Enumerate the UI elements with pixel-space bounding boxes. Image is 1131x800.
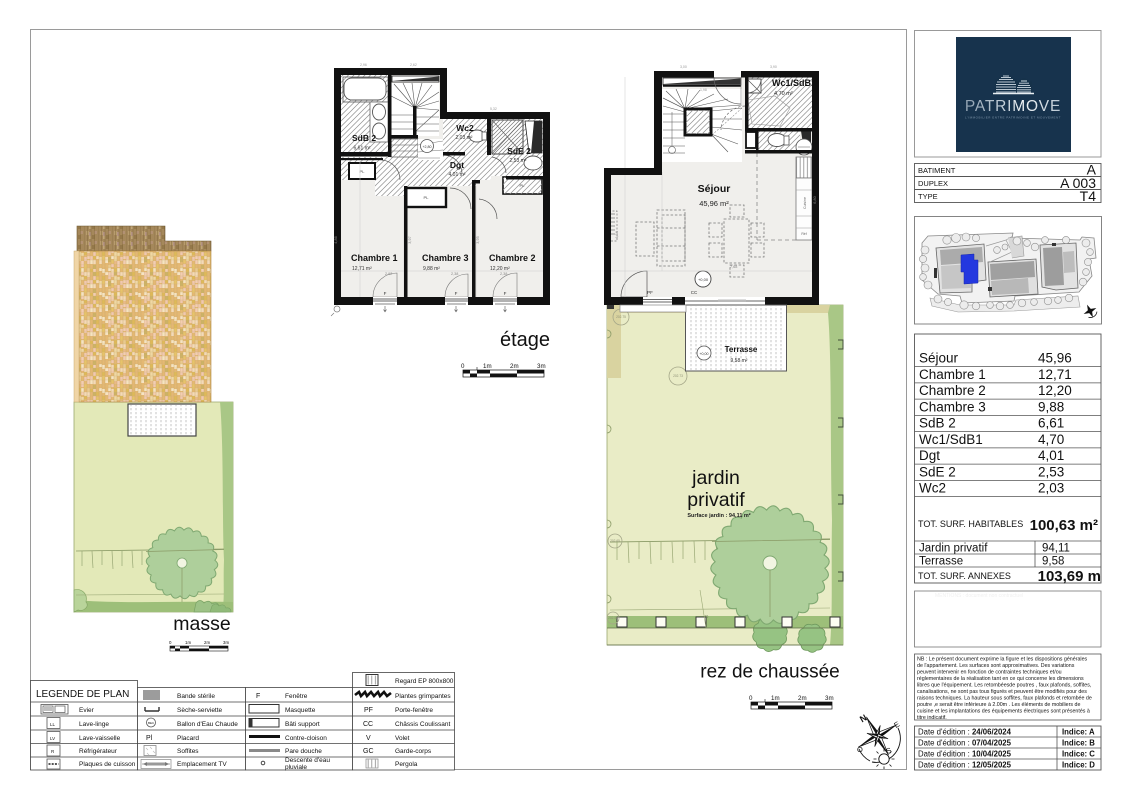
svg-text:Dgt: Dgt: [919, 448, 940, 463]
svg-text:F: F: [504, 291, 507, 296]
svg-text:9,88 m²: 9,88 m²: [423, 266, 440, 272]
svg-text:2,62: 2,62: [410, 63, 417, 67]
svg-text:3m: 3m: [537, 363, 546, 370]
svg-text:Date d'édition : 24/06/2024: Date d'édition : 24/06/2024: [918, 728, 1012, 737]
svg-text:L'IMMOBILIER ENTRE PATRIMOINE: L'IMMOBILIER ENTRE PATRIMOINE ET MOUVEME…: [965, 116, 1061, 120]
svg-text:cuisine et les implantations d: cuisine et les implantations des équipem…: [917, 709, 1090, 715]
svg-text:V: V: [366, 735, 371, 742]
svg-text:Bande stérile: Bande stérile: [177, 693, 215, 700]
svg-text:Descente d'eau: Descente d'eau: [285, 757, 330, 764]
svg-text:12,71: 12,71: [1038, 367, 1072, 382]
svg-text:Réfrigérateur: Réfrigérateur: [79, 748, 118, 755]
svg-text:4,70: 4,70: [1038, 432, 1064, 447]
svg-text:2,03 m²: 2,03 m²: [456, 135, 473, 141]
svg-text:Terrasse: Terrasse: [725, 345, 758, 354]
svg-text:TOT. SURF. ANNEXES: TOT. SURF. ANNEXES: [918, 571, 1011, 581]
svg-text:T4: T4: [1080, 188, 1097, 204]
svg-text:LV: LV: [50, 736, 55, 741]
svg-text:100,63 m²: 100,63 m²: [1030, 517, 1098, 534]
svg-text:Indice: D: Indice: D: [1062, 761, 1095, 770]
svg-text:canalisations, ne sont pas tou: canalisations, ne sont pas tous figurés …: [917, 689, 1087, 695]
svg-text:3,95: 3,95: [476, 236, 480, 243]
svg-text:Porte-fenêtre: Porte-fenêtre: [395, 707, 433, 714]
svg-text:+0,00: +0,00: [698, 277, 709, 282]
svg-text:Contre-cloison: Contre-cloison: [285, 735, 327, 742]
svg-text:2,53: 2,53: [1038, 464, 1064, 479]
svg-text:PL: PL: [520, 183, 526, 188]
svg-text:TOT. SURF. HABITABLES: TOT. SURF. HABITABLES: [918, 519, 1023, 529]
svg-text:202.75: 202.75: [616, 315, 626, 319]
svg-text:Emplacement TV: Emplacement TV: [177, 761, 227, 768]
svg-text:Wc1/SdB1: Wc1/SdB1: [772, 78, 816, 88]
svg-text:Soffites: Soffites: [177, 748, 199, 755]
svg-text:Sèche-serviette: Sèche-serviette: [177, 707, 223, 714]
svg-text:6,80: 6,80: [813, 196, 817, 203]
svg-text:12,71 m²: 12,71 m²: [352, 266, 372, 272]
svg-text:Plaques de cuisson: Plaques de cuisson: [79, 761, 136, 768]
svg-text:1m: 1m: [771, 695, 780, 702]
svg-text:3m: 3m: [223, 640, 229, 645]
svg-text:PATRIMOVE: PATRIMOVE: [965, 98, 1061, 115]
svg-text:LEGENDE DE PLAN: LEGENDE DE PLAN: [36, 689, 129, 700]
svg-text:1,98: 1,98: [700, 88, 707, 92]
svg-text:F: F: [384, 291, 387, 296]
svg-text:Pl: Pl: [146, 735, 153, 742]
svg-text:2,38: 2,38: [500, 272, 507, 276]
svg-text:Indice: A: Indice: A: [1062, 728, 1095, 737]
svg-text:Date d'édition : 10/04/2025: Date d'édition : 10/04/2025: [918, 750, 1012, 759]
svg-text:Séjour: Séjour: [698, 183, 731, 195]
svg-text:F: F: [455, 291, 458, 296]
svg-text:Regard EP 800x800: Regard EP 800x800: [395, 678, 454, 685]
svg-text:Bâti support: Bâti support: [285, 721, 320, 728]
svg-text:Chambre 1: Chambre 1: [919, 367, 986, 382]
svg-text:9,88: 9,88: [1038, 399, 1064, 414]
svg-text:Placard: Placard: [177, 735, 199, 742]
svg-text:9,58: 9,58: [1042, 556, 1064, 568]
svg-text:Evier: Evier: [79, 707, 95, 714]
svg-text:202.73: 202.73: [673, 374, 683, 378]
svg-text:2,92: 2,92: [385, 272, 392, 276]
svg-text:4,01 m²: 4,01 m²: [449, 172, 466, 178]
svg-text:SdB 2: SdB 2: [919, 416, 956, 431]
svg-text:202.65: 202.65: [610, 539, 620, 543]
svg-text:poutre ,e serait être inférieu: poutre ,e serait être inférieure à 2.00m…: [917, 702, 1080, 708]
svg-text:2m: 2m: [204, 640, 210, 645]
svg-text:1m: 1m: [185, 640, 191, 645]
svg-text:Chambre 3: Chambre 3: [919, 399, 986, 414]
svg-text:4,34: 4,34: [615, 231, 619, 238]
svg-text:TYPE: TYPE: [918, 192, 938, 201]
svg-text:Ballon d'Eau Chaude: Ballon d'Eau Chaude: [177, 721, 238, 728]
svg-text:Chambre 2: Chambre 2: [919, 383, 986, 398]
svg-text:CC: CC: [363, 721, 373, 728]
svg-text:Dgt: Dgt: [450, 160, 464, 170]
svg-text:9,58 m²: 9,58 m²: [731, 358, 748, 364]
svg-text:Réf: Réf: [801, 232, 806, 236]
svg-text:NB : Le présent document expri: NB : Le présent document exprime la figu…: [917, 657, 1088, 663]
svg-text:MENTIONS : document non contra: MENTIONS : document non contractuel: [935, 593, 1023, 599]
svg-text:PL: PL: [424, 195, 430, 200]
svg-text:3m: 3m: [825, 695, 834, 702]
svg-text:Chambre 1: Chambre 1: [351, 253, 398, 263]
svg-text:Pergola: Pergola: [395, 761, 418, 768]
svg-text:Pare douche: Pare douche: [285, 748, 322, 755]
svg-text:Chambre 2: Chambre 2: [489, 253, 536, 263]
svg-text:privatif: privatif: [687, 489, 745, 511]
svg-text:jardin: jardin: [691, 467, 740, 489]
svg-text:Wc2: Wc2: [919, 481, 946, 496]
svg-text:0: 0: [749, 695, 753, 702]
svg-text:7,68: 7,68: [730, 265, 737, 269]
svg-text:12,20: 12,20: [1038, 383, 1072, 398]
svg-text:GC: GC: [363, 748, 374, 755]
svg-text:2,38: 2,38: [451, 272, 458, 276]
svg-text:SdE 2: SdE 2: [507, 146, 531, 156]
svg-text:3,90: 3,90: [770, 65, 777, 69]
svg-text:Indice: B: Indice: B: [1062, 739, 1095, 748]
svg-text:Surface jardin : 94,11 m²: Surface jardin : 94,11 m²: [687, 512, 750, 519]
svg-text:Cuisine: Cuisine: [803, 197, 807, 209]
svg-text:F: F: [256, 693, 260, 700]
svg-text:SdE 2: SdE 2: [919, 464, 956, 479]
svg-text:Jardin privatif: Jardin privatif: [919, 543, 988, 555]
svg-text:O: O: [857, 745, 863, 754]
svg-text:titre indicatif.: titre indicatif.: [917, 715, 947, 721]
svg-text:+0,00: +0,00: [699, 352, 708, 356]
svg-text:+2,80: +2,80: [422, 145, 431, 149]
svg-text:4,01: 4,01: [1038, 448, 1064, 463]
svg-text:libres que l'équipement. Les r: libres que l'équipement. Les retombéesde…: [917, 683, 1091, 689]
svg-text:Indice: C: Indice: C: [1062, 750, 1095, 759]
svg-text:0: 0: [461, 363, 465, 370]
svg-text:Wc2: Wc2: [456, 123, 474, 133]
svg-text:BEC: BEC: [148, 721, 155, 725]
svg-text:45,96 m²: 45,96 m²: [699, 199, 729, 208]
svg-text:Lave-linge: Lave-linge: [79, 721, 109, 728]
svg-text:2,53 m²: 2,53 m²: [510, 158, 527, 164]
svg-text:Plantes grimpantes: Plantes grimpantes: [395, 693, 451, 700]
svg-text:Chambre 3: Chambre 3: [422, 253, 469, 263]
svg-text:103,69 m: 103,69 m: [1038, 568, 1101, 585]
svg-text:6,61: 6,61: [1038, 416, 1064, 431]
svg-text:4,70 m²: 4,70 m²: [774, 91, 793, 97]
svg-text:Volet: Volet: [395, 735, 410, 742]
svg-text:CC: CC: [691, 290, 698, 295]
svg-text:PF: PF: [647, 290, 653, 295]
svg-text:masse: masse: [173, 613, 230, 635]
svg-text:étage: étage: [500, 329, 550, 351]
svg-text:réglementaires de la réalisati: réglementaires de la réalisation tant en…: [917, 676, 1084, 682]
svg-text:Séjour: Séjour: [919, 351, 959, 366]
svg-text:LL: LL: [50, 722, 56, 727]
svg-text:2m: 2m: [510, 363, 519, 370]
svg-text:BATIMENT: BATIMENT: [918, 166, 956, 175]
svg-text:Garde-corps: Garde-corps: [395, 748, 432, 755]
svg-text:94,11: 94,11: [1042, 543, 1070, 555]
svg-text:3,97: 3,97: [408, 236, 412, 243]
svg-text:Fenêtre: Fenêtre: [285, 693, 308, 700]
svg-text:pluviale: pluviale: [285, 764, 307, 771]
svg-text:rez de chaussée: rez de chaussée: [700, 662, 839, 683]
svg-text:raisons techniques. La hauteur: raisons techniques. La hauteur sous soff…: [917, 696, 1092, 702]
svg-text:45,96: 45,96: [1038, 351, 1072, 366]
svg-text:4,86: 4,86: [334, 236, 338, 243]
svg-text:Masquette: Masquette: [285, 707, 316, 714]
svg-text:SdB 2: SdB 2: [352, 133, 376, 143]
svg-text:Terrasse: Terrasse: [919, 556, 963, 568]
svg-text:6,61 m²: 6,61 m²: [354, 146, 371, 152]
svg-text:2m: 2m: [798, 695, 807, 702]
svg-text:Châssis Coulissant: Châssis Coulissant: [395, 721, 450, 728]
svg-text:Lave-vaisselle: Lave-vaisselle: [79, 735, 121, 742]
svg-text:DUPLEX: DUPLEX: [918, 179, 948, 188]
svg-text:202.58: 202.58: [608, 616, 618, 620]
svg-text:Date d'édition : 12/05/2025: Date d'édition : 12/05/2025: [918, 761, 1012, 770]
svg-text:1m: 1m: [483, 363, 492, 370]
svg-text:2,03: 2,03: [1038, 481, 1064, 496]
svg-text:PL: PL: [360, 169, 366, 174]
svg-text:3,00: 3,00: [680, 65, 687, 69]
svg-text:Wc1/SdB1: Wc1/SdB1: [919, 432, 983, 447]
svg-text:peuvent intervenir en fonction: peuvent intervenir en fonction de contra…: [917, 670, 1062, 676]
svg-text:2,96: 2,96: [360, 63, 367, 67]
svg-text:Date d'édition : 07/04/2025: Date d'édition : 07/04/2025: [918, 739, 1012, 748]
svg-text:PF: PF: [364, 707, 373, 714]
svg-text:5,32: 5,32: [490, 107, 497, 111]
svg-text:de l'appartement. Les surfaces: de l'appartement. Les surfaces sont appr…: [917, 663, 1075, 669]
